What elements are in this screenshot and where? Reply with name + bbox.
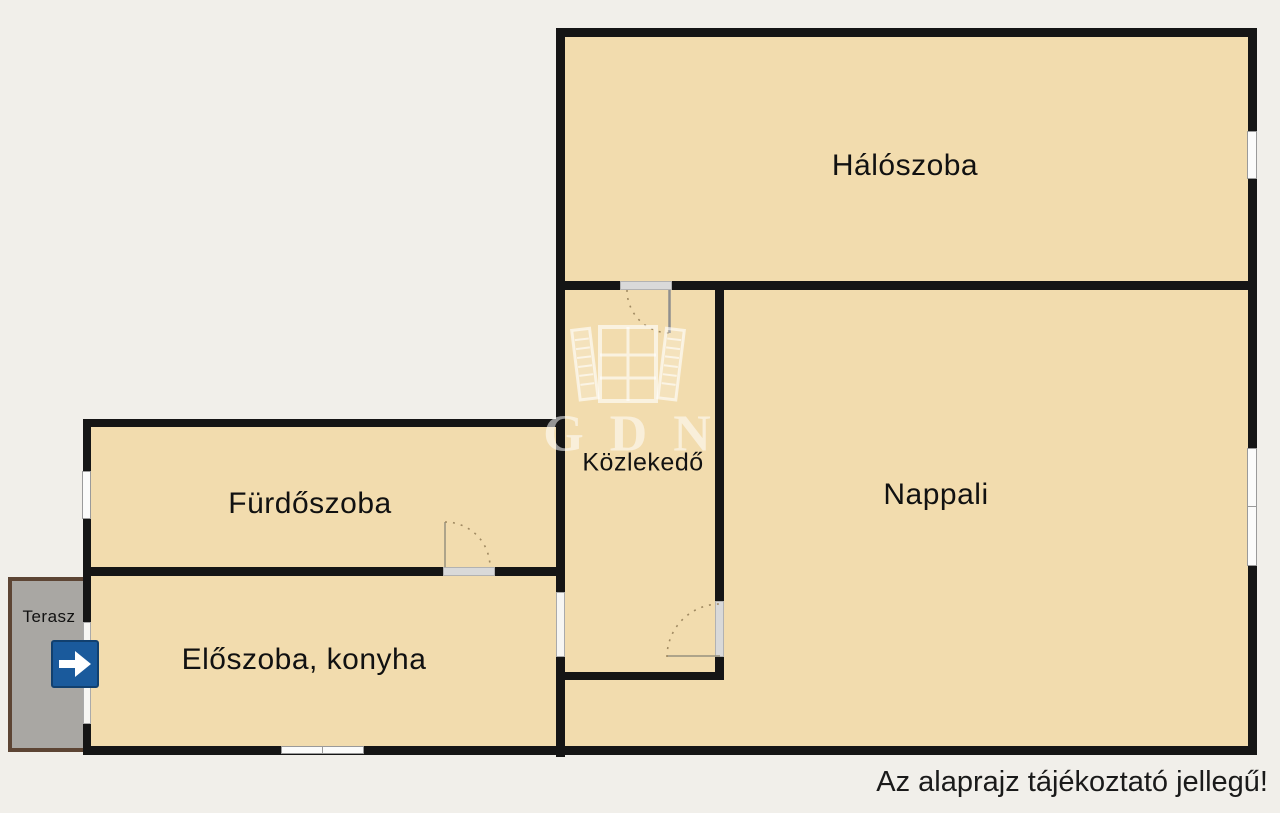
door-arc-livingroom	[667, 604, 720, 657]
room-label-nappali: Nappali	[883, 478, 988, 512]
open-window-icon	[570, 323, 686, 407]
door-arc-bathroom	[445, 522, 490, 567]
entrance-arrow-icon	[51, 640, 99, 688]
room-label-haloszoba: Hálószoba	[832, 149, 978, 183]
room-label-eloszoba-konyha: Előszoba, konyha	[182, 643, 427, 677]
room-label-furdoszoba: Fürdőszoba	[228, 487, 391, 521]
room-label-terasz: Terasz	[22, 607, 75, 627]
room-label-kozlekedo: Közlekedő	[582, 449, 703, 478]
disclaimer-text: Az alaprajz tájékoztató jellegű!	[876, 766, 1268, 799]
